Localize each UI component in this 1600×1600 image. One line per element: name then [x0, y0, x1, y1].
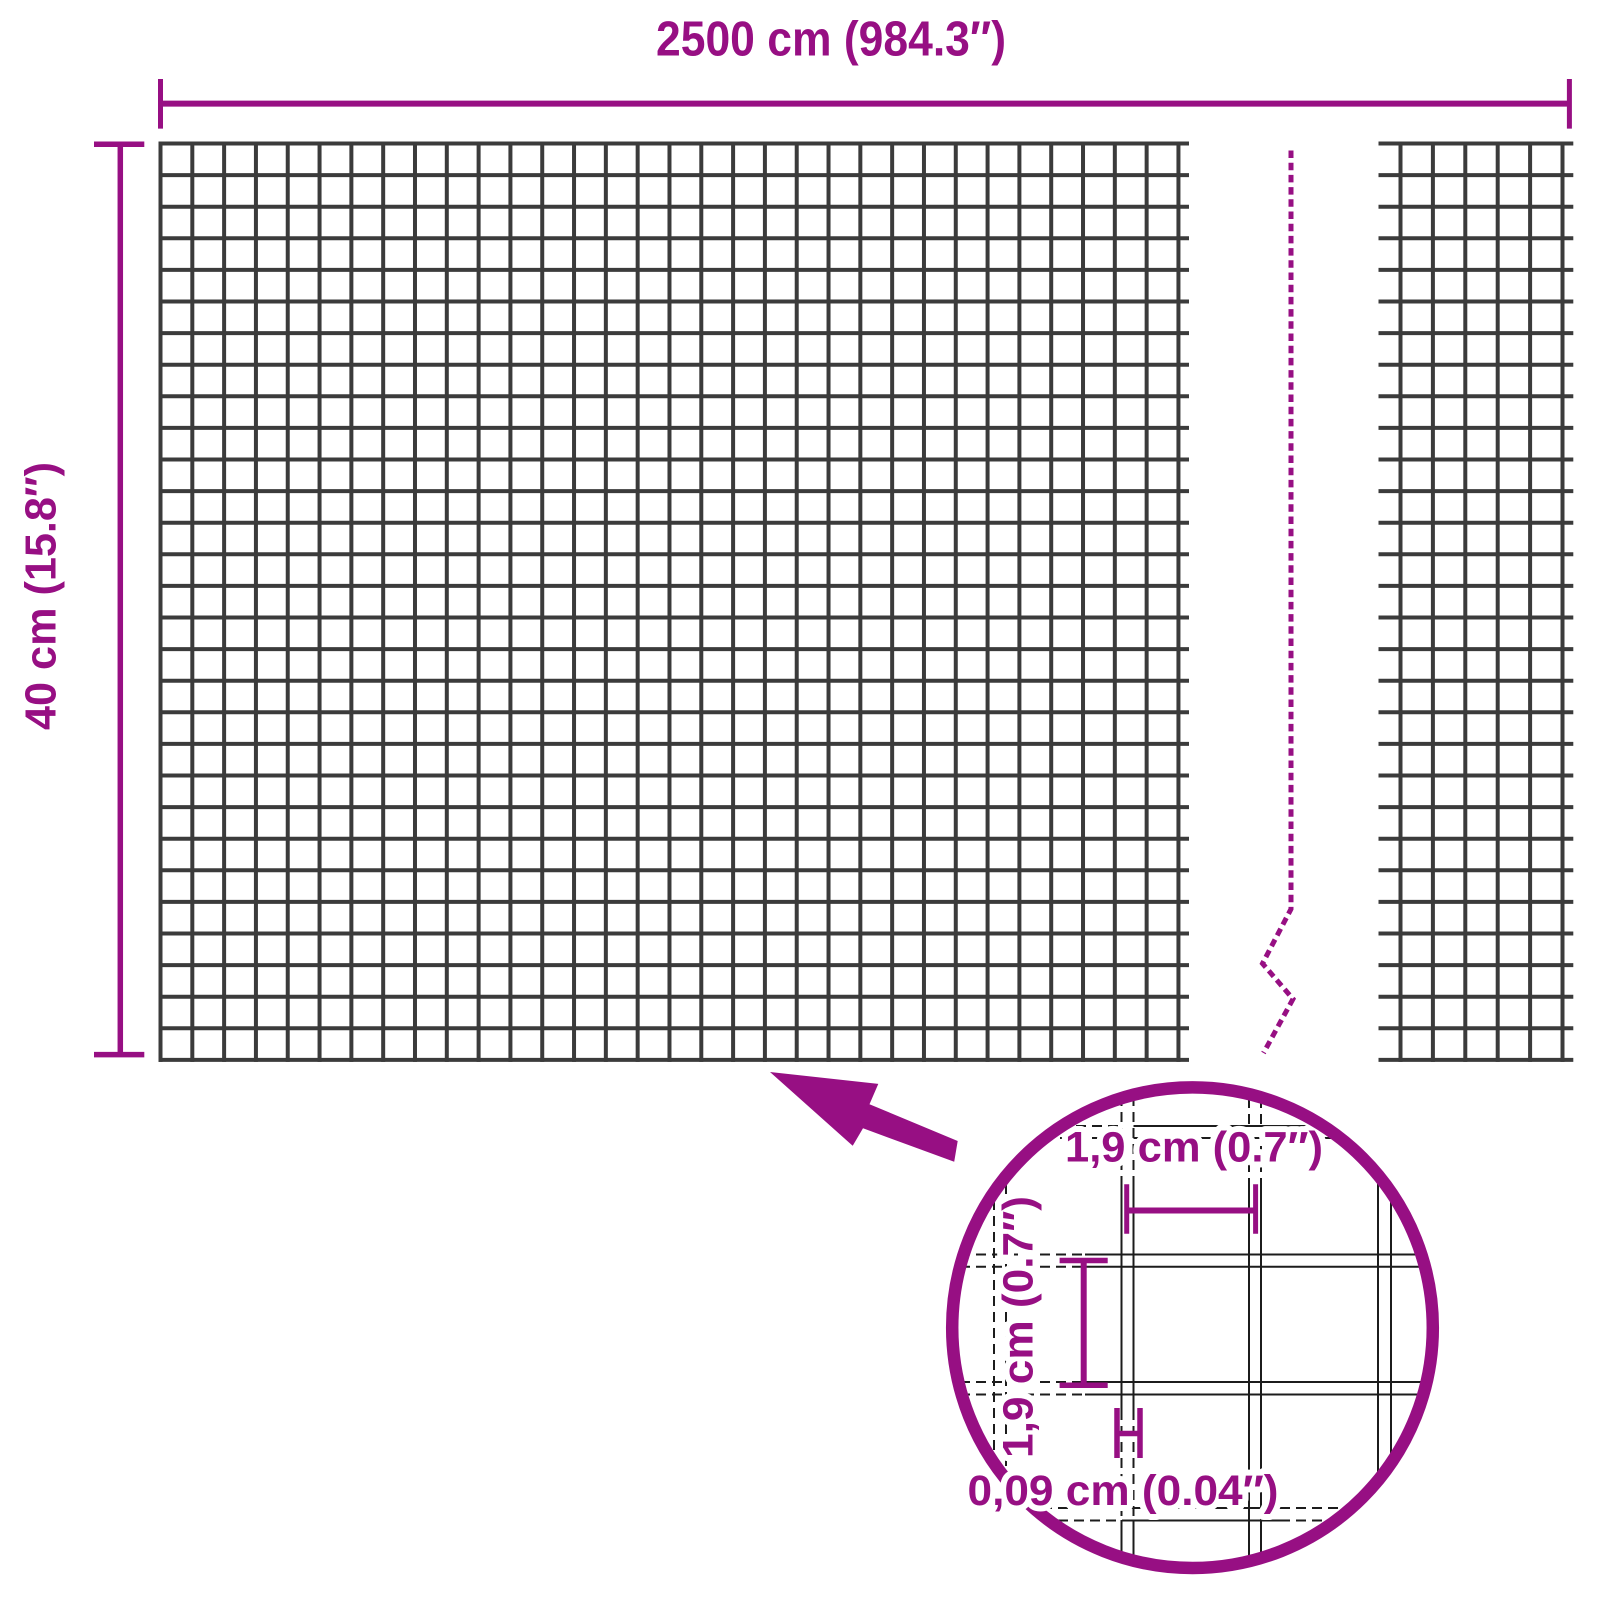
svg-text:40 cm (15.8″): 40 cm (15.8″)	[17, 462, 66, 730]
svg-text:1,9 cm (0.7″): 1,9 cm (0.7″)	[995, 1196, 1043, 1458]
svg-text:0,09 cm (0.04″): 0,09 cm (0.04″)	[968, 1467, 1279, 1515]
svg-text:1,9 cm (0.7″): 1,9 cm (0.7″)	[1065, 1124, 1323, 1172]
svg-text:2500 cm (984.3″): 2500 cm (984.3″)	[656, 13, 1006, 67]
